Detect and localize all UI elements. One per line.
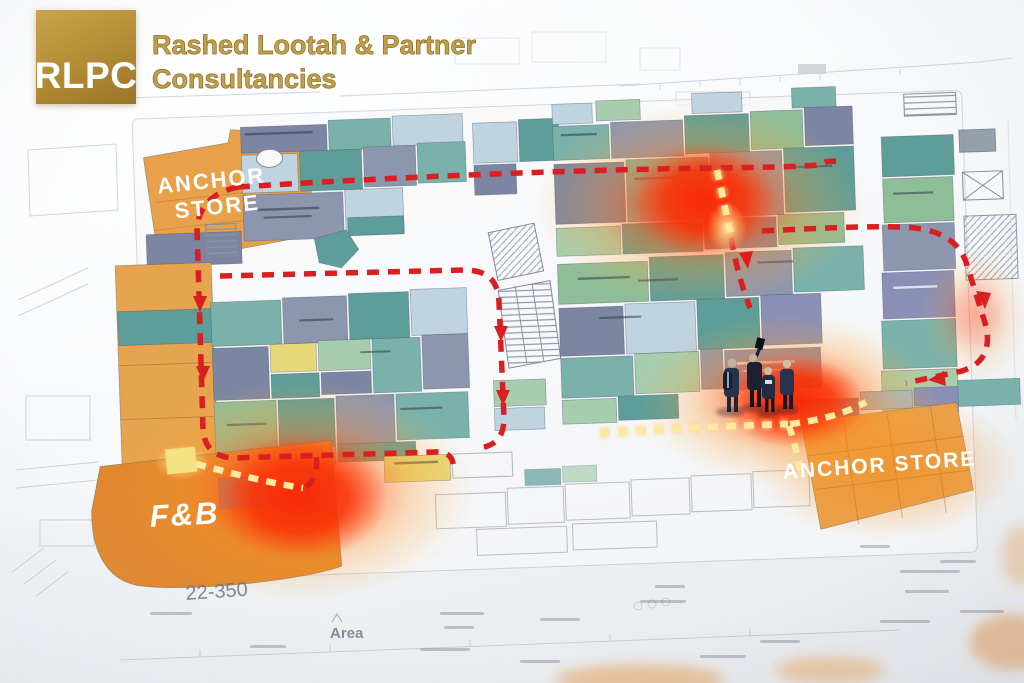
company-name-line1: Rashed Lootah & Partner <box>152 28 476 62</box>
brand-logo: RLPC Rashed Lootah & Partner Consultanci… <box>36 10 476 104</box>
escalator-hatch <box>488 223 544 281</box>
company-name: Rashed Lootah & Partner Consultancies <box>152 28 476 96</box>
dimension-note: 22-350 <box>185 579 249 605</box>
logo-badge: RLPC <box>36 10 136 104</box>
heat-core-top <box>633 144 777 256</box>
route-node-square <box>165 446 197 474</box>
heat-core-bottom-left <box>212 436 388 560</box>
stairs-icon <box>206 224 237 257</box>
fnb-label: F&B <box>149 495 220 534</box>
company-name-line2: Consultancies <box>152 62 476 96</box>
area-note: Area <box>330 625 364 642</box>
stair-bank-hatch <box>498 280 561 368</box>
logo-abbr: RLPC <box>35 57 138 104</box>
photo-canvas: ANCHOR STORE F&B ANCHOR STORE 22-350 Are… <box>0 0 1024 683</box>
